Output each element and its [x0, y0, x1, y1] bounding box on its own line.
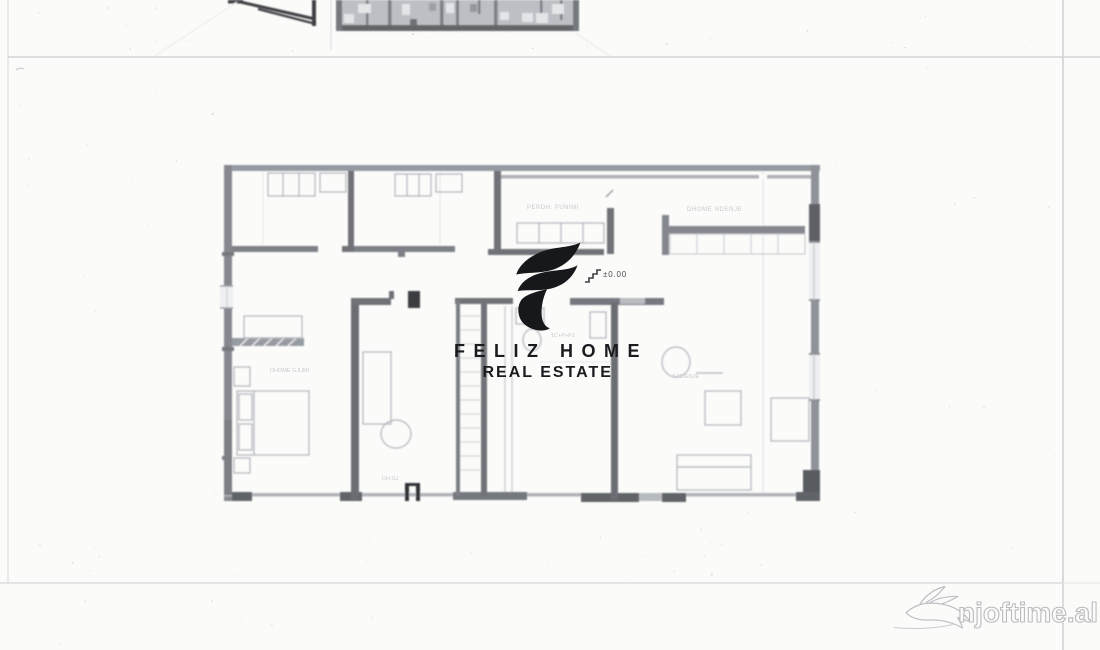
svg-text:1C+P+PJ: 1C+P+PJ: [551, 333, 575, 339]
svg-text:S.NDENJE: S.NDENJE: [672, 374, 700, 380]
svg-text:DHOME NDENJE: DHOME NDENJE: [687, 207, 742, 213]
svg-text:REAL ESTATE: REAL ESTATE: [483, 364, 613, 381]
svg-text:FELIZ HOME: FELIZ HOME: [454, 341, 648, 361]
svg-text:DH.GJ: DH.GJ: [382, 476, 399, 482]
svg-text:PERDH. PUNIMI: PERDH. PUNIMI: [527, 205, 579, 211]
svg-text:±0.00: ±0.00: [603, 270, 627, 279]
svg-text:DHOME GJUMI: DHOME GJUMI: [270, 368, 310, 374]
svg-text:njoftime.al: njoftime.al: [958, 597, 1098, 628]
